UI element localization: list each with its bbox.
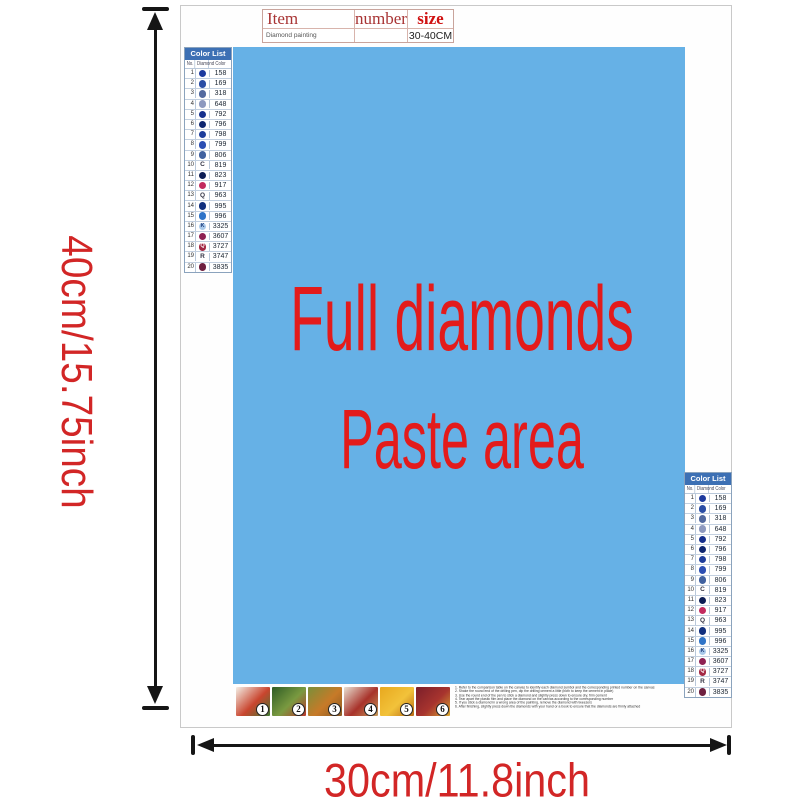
color-row: 6796 [185, 119, 231, 129]
color-row-number: 1 [685, 494, 696, 503]
color-code: 3835 [210, 263, 231, 272]
color-row-number: 14 [685, 627, 696, 636]
color-code: 158 [710, 494, 731, 503]
color-row-number: 10 [685, 586, 696, 595]
color-row: 173607 [185, 231, 231, 241]
color-row-number: 11 [685, 596, 696, 605]
color-row-number: 7 [185, 130, 196, 139]
instruction-line: 6. After finishing, slightly press down … [455, 705, 694, 709]
color-row-number: 10 [185, 161, 196, 170]
height-arrow-line [154, 26, 157, 688]
color-code: 995 [210, 202, 231, 211]
diamond-symbol-icon [696, 515, 710, 523]
color-row: 7798 [185, 129, 231, 139]
color-code: 798 [210, 130, 231, 139]
color-code: 796 [210, 120, 231, 129]
paste-area-subtitle: Paste area [340, 397, 584, 481]
color-row: 1158 [185, 69, 231, 78]
color-code: 792 [710, 535, 731, 544]
color-row: 7798 [685, 554, 731, 564]
color-code: 917 [710, 606, 731, 615]
step-thumbnail: 6 [416, 687, 450, 716]
arrow-right-icon [710, 738, 727, 752]
width-arrow-left-cap [191, 735, 195, 755]
diamond-symbol-icon [696, 546, 710, 554]
color-code: 796 [710, 545, 731, 554]
color-code: 995 [710, 627, 731, 636]
diamond-symbol-icon [696, 505, 710, 513]
color-row: 19R3747 [185, 251, 231, 261]
color-row: 13Q963 [185, 190, 231, 200]
color-row: 8799 [185, 139, 231, 149]
step-thumbnail: 3 [308, 687, 342, 716]
color-code: 158 [210, 69, 231, 78]
diamond-symbol-icon [696, 597, 710, 605]
col-diamond: Diamond [697, 485, 709, 493]
color-code: 318 [210, 89, 231, 98]
color-row: 173607 [685, 656, 731, 666]
color-row: 10C819 [685, 585, 731, 595]
color-row: 11823 [185, 170, 231, 180]
diamond-symbol-icon: R [196, 253, 210, 261]
color-row: 2169 [185, 78, 231, 88]
color-row-number: 9 [185, 151, 196, 160]
color-row: 9806 [685, 575, 731, 585]
color-row-number: 16 [685, 647, 696, 656]
color-row: 15996 [685, 636, 731, 646]
diamond-symbol-icon: Q [696, 668, 710, 676]
color-code: 169 [710, 504, 731, 513]
color-code: 823 [210, 171, 231, 180]
diamond-symbol-icon [196, 182, 210, 190]
step-thumbnail: 2 [272, 687, 306, 716]
color-list-left-rows: 11582169331846485792679677988799980610C8… [185, 69, 231, 272]
color-row: 4648 [185, 99, 231, 109]
color-row: 14995 [685, 625, 731, 635]
color-row-number: 8 [685, 565, 696, 574]
diamond-symbol-icon [196, 70, 210, 78]
diamond-symbol-icon [196, 121, 210, 129]
diamond-symbol-icon [696, 576, 710, 584]
color-code: 3325 [710, 647, 731, 656]
diamond-symbol-icon: C [696, 586, 710, 594]
color-row: 18Q3727 [185, 241, 231, 251]
color-row: 1158 [685, 494, 731, 503]
color-row: 12917 [685, 605, 731, 615]
color-row-number: 12 [185, 181, 196, 190]
diamond-symbol-icon [696, 495, 710, 503]
paste-area-title: Full diamonds [290, 273, 634, 365]
diamond-symbol-icon [196, 212, 210, 220]
diamond-symbol-icon [696, 658, 710, 666]
color-code: 996 [710, 637, 731, 646]
color-row-number: 6 [185, 120, 196, 129]
color-row-number: 16 [185, 222, 196, 231]
diamond-symbol-icon [196, 100, 210, 108]
height-arrow-top-cap [142, 7, 169, 11]
color-code: 3607 [210, 232, 231, 241]
color-row-number: 4 [185, 100, 196, 109]
color-row: 15996 [185, 211, 231, 221]
color-row-number: 12 [685, 606, 696, 615]
paste-area: Full diamonds Paste area [233, 47, 685, 684]
diamond-symbol-icon: Q [196, 243, 210, 251]
color-list-right: Color List No. Diamond Color 11582169331… [684, 472, 732, 698]
color-row-number: 13 [685, 616, 696, 625]
color-row: 6796 [685, 544, 731, 554]
color-code: 799 [710, 565, 731, 574]
color-row: 3318 [185, 88, 231, 98]
color-row-number: 8 [185, 140, 196, 149]
number-value [355, 29, 408, 42]
color-row: 14995 [185, 200, 231, 210]
diamond-symbol-icon [196, 233, 210, 241]
color-row: 203835 [185, 262, 231, 272]
color-code: 169 [210, 79, 231, 88]
number-header: number [355, 10, 408, 29]
color-code: 917 [210, 181, 231, 190]
diamond-symbol-icon [196, 90, 210, 98]
color-code: 806 [710, 576, 731, 585]
color-list-left-columns: No. Diamond Color [185, 60, 231, 69]
width-arrow-right-cap [727, 735, 731, 755]
col-color: Color [212, 60, 230, 68]
diamond-symbol-icon [196, 151, 210, 159]
color-code: 963 [710, 616, 731, 625]
color-code: 963 [210, 191, 231, 200]
color-list-left: Color List No. Diamond Color 11582169331… [184, 47, 232, 273]
step-thumbnail: 4 [344, 687, 378, 716]
color-code: 318 [710, 514, 731, 523]
color-code: 799 [210, 140, 231, 149]
color-code: 819 [710, 586, 731, 595]
diamond-symbol-icon [696, 525, 710, 533]
diamond-symbol-icon [196, 111, 210, 119]
color-code: 3747 [210, 252, 231, 261]
color-row-number: 17 [685, 657, 696, 666]
diamond-symbol-icon [696, 607, 710, 615]
width-arrow-line [210, 744, 712, 747]
arrow-down-icon [147, 686, 163, 704]
step-number-badge: 5 [400, 703, 413, 716]
color-row-number: 20 [185, 263, 196, 272]
diamond-symbol-icon: K [196, 223, 210, 231]
diamond-symbol-icon [696, 688, 710, 696]
color-code: 3727 [710, 667, 731, 676]
color-row-number: 18 [185, 242, 196, 251]
color-list-right-rows: 11582169331846485792679677988799980610C8… [685, 494, 731, 697]
color-list-left-title: Color List [185, 48, 231, 60]
color-code: 3325 [210, 222, 231, 231]
color-code: 798 [710, 555, 731, 564]
color-row: 11823 [685, 595, 731, 605]
color-row-number: 5 [685, 535, 696, 544]
col-color: Color [712, 485, 730, 493]
color-row-number: 6 [685, 545, 696, 554]
step-number-badge: 2 [292, 703, 305, 716]
color-code: 806 [210, 151, 231, 160]
diamond-symbol-icon [196, 202, 210, 210]
diamond-symbol-icon [696, 637, 710, 645]
color-row: 16K3325 [185, 221, 231, 231]
diamond-symbol-icon: Q [696, 617, 710, 625]
height-arrow-bottom-cap [142, 706, 169, 710]
color-row-number: 9 [685, 576, 696, 585]
item-size-table: Item number size Diamond painting 30-40C… [262, 9, 454, 43]
color-code: 823 [710, 596, 731, 605]
color-row-number: 15 [185, 212, 196, 221]
instruction-text: 1. Refer to the comparison table on the … [455, 686, 695, 710]
step-thumbnails: 123456 [236, 687, 450, 716]
color-row-number: 14 [185, 202, 196, 211]
instruction-lines: 1. Refer to the comparison table on the … [455, 686, 694, 709]
color-row-number: 2 [685, 504, 696, 513]
step-number-badge: 1 [256, 703, 269, 716]
color-row: 10C819 [185, 160, 231, 170]
color-code: 792 [210, 110, 231, 119]
diamond-symbol-icon [696, 536, 710, 544]
color-code: 3727 [210, 242, 231, 251]
color-row-number: 2 [185, 79, 196, 88]
color-row-number: 15 [685, 637, 696, 646]
diamond-symbol-icon [196, 131, 210, 139]
size-header: size [408, 10, 453, 29]
color-row-number: 4 [685, 525, 696, 534]
color-list-right-columns: No. Diamond Color [685, 485, 731, 494]
color-row-number: 7 [685, 555, 696, 564]
item-header: Item [263, 10, 355, 29]
color-row-number: 19 [185, 252, 196, 261]
color-row: 5792 [685, 534, 731, 544]
color-row: 12917 [185, 180, 231, 190]
color-row-number: 17 [185, 232, 196, 241]
col-no: No. [186, 60, 195, 68]
color-row: 13Q963 [685, 615, 731, 625]
step-number-badge: 4 [364, 703, 377, 716]
diamond-symbol-icon [196, 141, 210, 149]
color-code: 648 [210, 100, 231, 109]
color-row: 9806 [185, 150, 231, 160]
diamond-symbol-icon [696, 556, 710, 564]
color-row: 8799 [685, 564, 731, 574]
width-dimension-label: 30cm/11.8inch [324, 757, 590, 800]
diamond-symbol-icon [196, 80, 210, 88]
color-row-number: 3 [685, 514, 696, 523]
step-thumbnail: 5 [380, 687, 414, 716]
col-no: No. [686, 485, 695, 493]
color-row: 5792 [185, 109, 231, 119]
color-code: 3607 [710, 657, 731, 666]
size-value: 30-40CM [408, 29, 453, 42]
diamond-symbol-icon: C [196, 161, 210, 169]
color-row: 16K3325 [685, 646, 731, 656]
diamond-symbol-icon [196, 172, 210, 180]
color-row: 4648 [685, 524, 731, 534]
color-row-number: 5 [185, 110, 196, 119]
diamond-symbol-icon: R [696, 678, 710, 686]
diamond-symbol-icon [696, 627, 710, 635]
col-diamond: Diamond [197, 60, 209, 68]
color-code: 648 [710, 525, 731, 534]
step-thumbnail: 1 [236, 687, 270, 716]
color-code: 996 [210, 212, 231, 221]
color-row-number: 13 [185, 191, 196, 200]
diamond-symbol-icon [696, 566, 710, 574]
color-row: 3318 [685, 513, 731, 523]
diamond-symbol-icon: K [696, 648, 710, 656]
color-code: 3747 [710, 677, 731, 686]
product-image: Full diamonds Paste area Item number siz… [0, 0, 800, 800]
diamond-symbol-icon: Q [196, 192, 210, 200]
color-row: 18Q3727 [685, 666, 731, 676]
color-row-number: 1 [185, 69, 196, 78]
color-code: 3835 [710, 688, 731, 697]
color-row-number: 3 [185, 89, 196, 98]
color-row-number: 11 [185, 171, 196, 180]
diamond-symbol-icon [196, 263, 210, 271]
color-list-right-title: Color List [685, 473, 731, 485]
color-row-number: 18 [685, 667, 696, 676]
color-row: 2169 [685, 503, 731, 513]
item-value: Diamond painting [263, 29, 355, 42]
step-number-badge: 3 [328, 703, 341, 716]
height-dimension-label: 40cm/15.75inch [54, 235, 98, 508]
step-number-badge: 6 [436, 703, 449, 716]
color-code: 819 [210, 161, 231, 170]
